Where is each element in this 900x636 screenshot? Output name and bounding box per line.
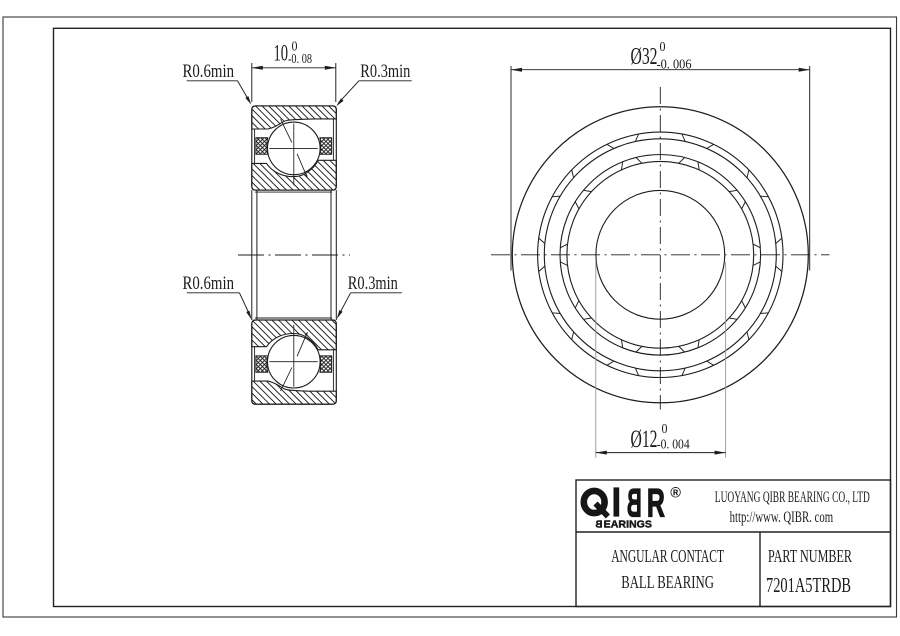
svg-text:B: B (595, 519, 602, 530)
svg-text:ANGULAR CONTACT: ANGULAR CONTACT (611, 546, 724, 566)
svg-text:R0.6min: R0.6min (183, 61, 235, 82)
svg-text:-0. 08: -0. 08 (288, 52, 312, 67)
svg-text:Ø12: Ø12 (631, 426, 658, 453)
svg-text:Ø32: Ø32 (631, 44, 658, 70)
svg-text:0: 0 (660, 40, 666, 55)
svg-text:BALL BEARING: BALL BEARING (621, 572, 714, 592)
svg-text:®: ® (670, 486, 681, 502)
svg-text:R0.3min: R0.3min (360, 61, 410, 82)
svg-text:EARINGS: EARINGS (604, 519, 653, 530)
svg-text:PART NUMBER: PART NUMBER (768, 546, 852, 566)
svg-text:http://www. QIBR. com: http://www. QIBR. com (730, 509, 834, 526)
svg-text:-0. 004: -0. 004 (657, 437, 690, 452)
svg-text:0: 0 (662, 422, 668, 437)
svg-text:-0. 006: -0. 006 (657, 58, 692, 73)
svg-text:R0.3min: R0.3min (348, 273, 398, 294)
svg-text:LUOYANG QIBR BEARING CO., LTD: LUOYANG QIBR BEARING CO., LTD (715, 489, 870, 506)
svg-text:R0.6min: R0.6min (183, 273, 235, 294)
svg-text:7201A5TRDB: 7201A5TRDB (766, 573, 851, 597)
svg-text:10: 10 (274, 40, 289, 65)
